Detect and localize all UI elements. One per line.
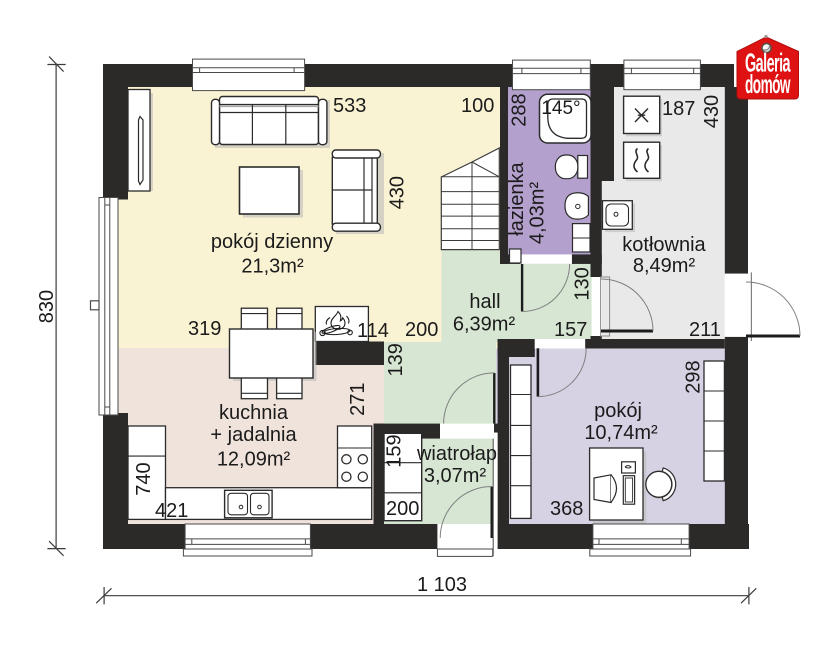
- svg-text:211: 211: [689, 319, 721, 341]
- svg-text:kotłownia: kotłownia: [622, 234, 706, 256]
- svg-text:łazienka: łazienka: [506, 161, 528, 235]
- svg-text:145°: 145°: [541, 98, 580, 119]
- svg-text:6,39m²: 6,39m²: [453, 314, 516, 336]
- svg-text:pokój: pokój: [594, 400, 642, 422]
- svg-text:157: 157: [554, 319, 587, 341]
- svg-text:533: 533: [333, 95, 366, 117]
- svg-text:288: 288: [509, 93, 531, 126]
- svg-text:114: 114: [357, 320, 389, 342]
- svg-text:1 103: 1 103: [417, 574, 467, 596]
- svg-text:200: 200: [386, 498, 419, 520]
- svg-text:430: 430: [701, 95, 723, 128]
- svg-text:319: 319: [188, 318, 221, 340]
- svg-text:4,03m²: 4,03m²: [527, 182, 549, 245]
- svg-text:100: 100: [461, 95, 494, 117]
- svg-text:pokój dzienny: pokój dzienny: [211, 231, 333, 253]
- svg-text:kuchnia: kuchnia: [219, 402, 289, 424]
- svg-text:3,07m²: 3,07m²: [424, 465, 487, 487]
- svg-text:wiatrołap: wiatrołap: [416, 443, 497, 465]
- svg-text:271: 271: [347, 383, 369, 416]
- svg-text:10,74m²: 10,74m²: [584, 422, 658, 444]
- svg-text:+ jadalnia: + jadalnia: [210, 424, 297, 446]
- svg-text:430: 430: [387, 176, 409, 209]
- svg-text:130: 130: [572, 267, 594, 300]
- svg-text:830: 830: [36, 290, 58, 323]
- svg-text:21,3m²: 21,3m²: [241, 256, 304, 278]
- svg-text:139: 139: [385, 343, 407, 376]
- svg-text:hall: hall: [469, 291, 500, 313]
- svg-text:8,49m²: 8,49m²: [633, 255, 696, 277]
- svg-text:domów: domów: [745, 69, 791, 99]
- svg-text:368: 368: [550, 498, 583, 520]
- svg-text:421: 421: [155, 500, 188, 522]
- svg-text:12,09m²: 12,09m²: [217, 449, 291, 471]
- svg-text:740: 740: [133, 462, 155, 495]
- svg-text:298: 298: [683, 360, 705, 393]
- svg-text:200: 200: [405, 319, 438, 341]
- svg-text:187: 187: [662, 98, 695, 120]
- svg-text:159: 159: [384, 434, 406, 467]
